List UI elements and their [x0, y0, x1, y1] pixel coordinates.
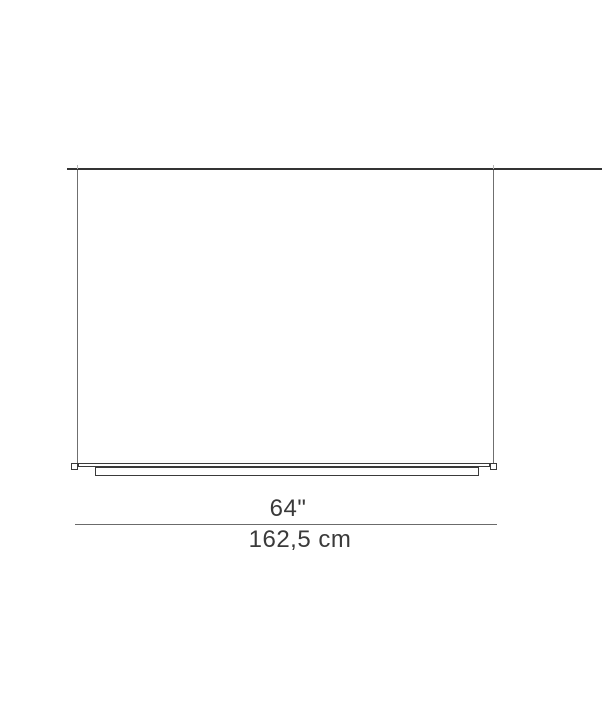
dimension-drawing: 64" 162,5 cm [0, 0, 602, 722]
lamp-top-rail [78, 463, 491, 467]
ceiling-line [67, 168, 602, 170]
width-label-inches: 64" [270, 497, 307, 521]
right-suspension-cable [493, 170, 494, 464]
dimension-line [75, 524, 497, 526]
lamp-diffuser-body [95, 467, 479, 477]
width-label-cm: 162,5 cm [249, 528, 352, 552]
left-suspension-cable [77, 170, 78, 464]
right-cable-anchor [493, 165, 494, 169]
left-cable-anchor [77, 165, 78, 169]
left-end-cap [71, 463, 79, 471]
right-end-cap [490, 463, 498, 471]
